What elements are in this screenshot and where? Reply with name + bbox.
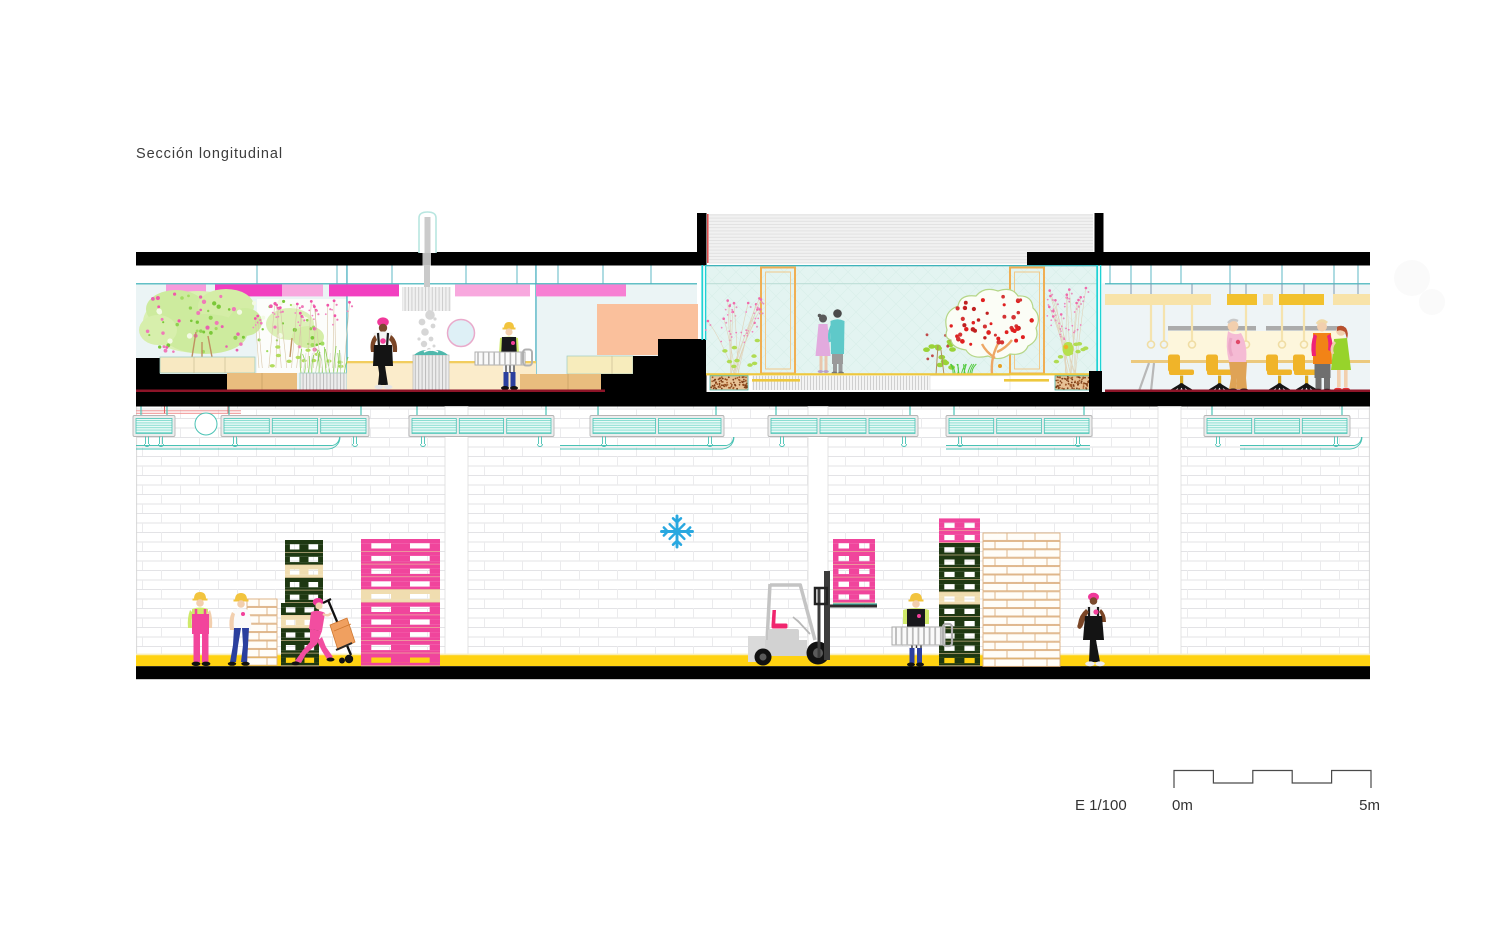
- svg-text:Sección longitudinal: Sección longitudinal: [136, 146, 283, 162]
- svg-text:0m: 0m: [1172, 797, 1193, 814]
- svg-text:5m: 5m: [1359, 797, 1380, 814]
- svg-text:E 1/100: E 1/100: [1075, 797, 1127, 814]
